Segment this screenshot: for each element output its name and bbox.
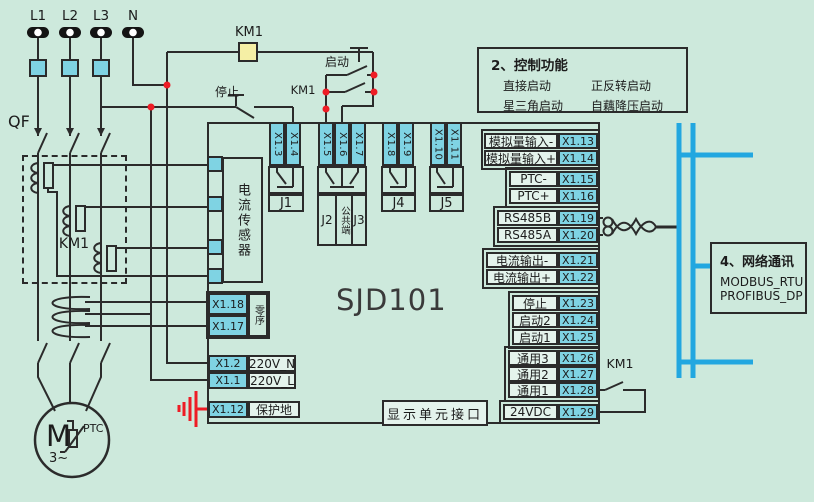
row-label-analog-plus: 模拟量输入+ (484, 150, 558, 166)
ct1-element (44, 163, 53, 188)
twisted-pair-ring-top (604, 218, 613, 227)
start-button-label: 启动 (318, 55, 356, 68)
relay-common-label: 公共端 (337, 196, 353, 244)
breaker-arrowheads (34, 128, 105, 136)
network-title: 4、网络通讯 (720, 251, 805, 270)
relay-j2-j3-label-block: J2 公共端 J3 (317, 194, 367, 246)
row-label-24vdc: 24VDC (503, 404, 558, 420)
terminal-x1-29: X1.29 (558, 404, 598, 420)
control-fn-direct-start: 直接启动 (503, 77, 591, 94)
control-fn-star-delta-start: 星三角启动 (503, 97, 591, 114)
ct-coils (31, 163, 101, 273)
relay-j5-label: J5 (429, 194, 464, 212)
terminal-x1-27: X1.27 (558, 366, 598, 382)
terminal-x1-6: X1.6 (334, 122, 350, 166)
motor-controller-wiring-diagram: L1 L2 L3 N QF KM1 停止 启动 KM1 KM1 电流传感器 X1… (0, 0, 814, 502)
terminal-x1-17: X1.17 (208, 315, 248, 337)
terminal-x1-24: X1.24 (558, 312, 598, 328)
phase-label-l1: L1 (28, 8, 48, 23)
km1-main-blades (38, 343, 110, 363)
phase-label-l2: L2 (60, 8, 80, 23)
km1-output-circuit (597, 382, 645, 412)
row-label-rs485b: RS485B (497, 210, 558, 226)
km1-aux-label: KM1 (288, 84, 318, 96)
protective-earth-symbol (179, 391, 207, 427)
terminal-x1-2: X1.2 (208, 355, 248, 372)
network-protocol-modbus: MODBUS_RTU (720, 275, 805, 289)
row-label-rs485a: RS485A (497, 227, 558, 243)
breaker-blades (38, 133, 110, 153)
fuses (30, 60, 109, 76)
row-label-start1: 启动1 (512, 329, 558, 345)
phase-label-n: N (123, 8, 143, 23)
terminal-x1-5: X1.5 (318, 122, 334, 166)
terminal-x1-10: X1.10 (430, 122, 446, 166)
relay-j2-label: J2 (319, 196, 337, 244)
breaker-label: QF (8, 112, 30, 131)
row-label-general2: 通用2 (508, 366, 558, 382)
motor-ptc-label: PTC (83, 422, 103, 435)
control-fn-autotransformer-start: 自藕降压启动 (591, 97, 663, 114)
stop-button-label: 停止 (209, 85, 245, 98)
motor-designation: M (46, 419, 71, 453)
terminal-x1-8: X1.8 (382, 122, 398, 166)
row-label-ptc-minus: PTC- (509, 171, 558, 187)
row-label-stop: 停止 (512, 295, 558, 311)
terminal-x1-11: X1.11 (446, 122, 462, 166)
terminal-x1-12: X1.12 (208, 401, 248, 418)
control-functions-title: 2、控制功能 (491, 54, 686, 74)
terminal-x1-26: X1.26 (558, 350, 598, 366)
terminal-x1-1: X1.1 (208, 372, 248, 389)
km1-coil-box (239, 43, 257, 61)
terminal-x1-18: X1.18 (208, 293, 248, 315)
terminal-x1-21: X1.21 (558, 252, 598, 268)
zero-sequence-coil (53, 297, 91, 337)
twisted-pair-ring-bottom (604, 227, 613, 236)
phase-label-l3: L3 (91, 8, 111, 23)
terminal-x1-4: X1.4 (285, 122, 301, 166)
terminal-x1-7: X1.7 (350, 122, 366, 166)
relay-j3-label: J3 (353, 196, 365, 244)
terminal-x1-20: X1.20 (558, 227, 598, 243)
row-label-general3: 通用3 (508, 350, 558, 366)
terminal-x1-9: X1.9 (398, 122, 414, 166)
terminal-x1-14: X1.14 (558, 150, 598, 166)
label-220v-n: 220V_N (248, 355, 296, 372)
row-label-start2: 启动2 (512, 312, 558, 328)
terminal-x1-25: X1.25 (558, 329, 598, 345)
label-protective-earth: 保护地 (248, 401, 300, 418)
device-model: SJD101 (336, 283, 447, 317)
km1-ct-label: KM1 (55, 236, 93, 252)
wire-layer (0, 0, 814, 502)
row-label-general1: 通用1 (508, 382, 558, 398)
control-fn-fwd-rev-start: 正反转启动 (591, 77, 651, 94)
supply-clamps (27, 27, 144, 38)
terminal-x1-23: X1.23 (558, 295, 598, 311)
ct3-element (107, 246, 116, 271)
row-label-ptc-plus: PTC+ (509, 188, 558, 204)
relay-j4-label: J4 (381, 194, 416, 212)
ct2-element (76, 206, 85, 231)
twisted-pair-braid (612, 219, 656, 234)
terminal-x1-13: X1.13 (558, 133, 598, 149)
terminal-x1-3: X1.3 (269, 122, 285, 166)
relay-contact-glyphs (277, 166, 453, 187)
terminal-x1-19: X1.19 (558, 210, 598, 226)
row-label-current-out-plus: 电流输出+ (486, 269, 558, 285)
sensor-input-squares (208, 157, 222, 283)
control-functions-box: 2、控制功能 直接启动 正反转启动 星三角启动 自藕降压启动 (477, 47, 688, 113)
network-box: 4、网络通讯 MODBUS_RTU PROFIBUS_DP (710, 242, 807, 314)
terminal-x1-28: X1.28 (558, 382, 598, 398)
motor-phase: 3~ (49, 451, 68, 466)
km1-output-label: KM1 (602, 356, 638, 371)
label-220v-l: 220V_L (248, 372, 296, 389)
current-sensor-box: 电流传感器 (222, 157, 263, 283)
row-label-current-out-minus: 电流输出- (486, 252, 558, 268)
terminal-x1-15: X1.15 (558, 171, 598, 187)
relay-j1-label: J1 (268, 194, 304, 212)
zero-seq-label: 零序 (248, 293, 268, 337)
row-label-analog-minus: 模拟量输入- (484, 133, 558, 149)
terminal-x1-16: X1.16 (558, 188, 598, 204)
display-interface-box: 显示单元接口 (382, 400, 488, 426)
km1-coil-label: KM1 (232, 25, 266, 40)
current-sensor-label: 电流传感器 (233, 183, 252, 258)
terminal-x1-22: X1.22 (558, 269, 598, 285)
network-protocol-profibus: PROFIBUS_DP (720, 289, 805, 303)
